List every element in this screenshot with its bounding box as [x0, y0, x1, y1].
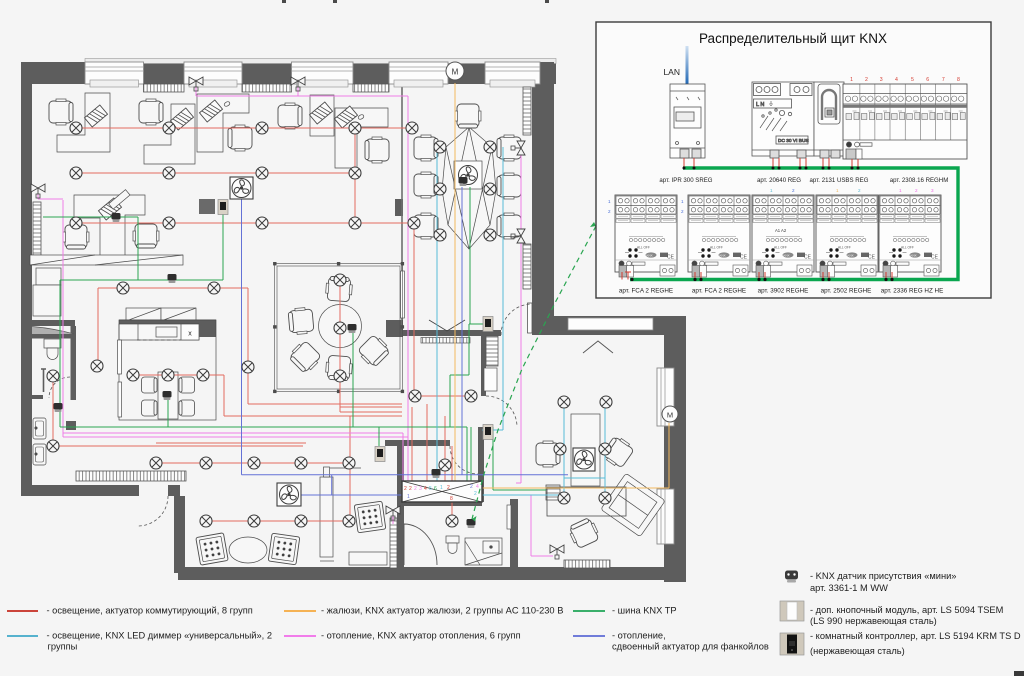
svg-text:2: 2	[409, 486, 412, 492]
svg-text:4: 4	[895, 77, 898, 83]
svg-text:8: 8	[957, 77, 960, 83]
svg-text:1: 1	[899, 188, 902, 193]
svg-text:2: 2	[474, 491, 477, 497]
svg-text:M: M	[452, 68, 459, 77]
svg-text:- комнатный контроллер, арт. L: - комнатный контроллер, арт. LS 5194 KRM…	[810, 631, 1021, 641]
svg-text:2: 2	[414, 486, 417, 492]
svg-text:арт. 3361-1 М WW: арт. 3361-1 М WW	[810, 583, 888, 593]
svg-text:4: 4	[476, 484, 479, 490]
svg-text:1: 1	[850, 77, 853, 83]
svg-text:группы: группы	[48, 642, 78, 652]
svg-text:- доп. кнопочный модуль, арт.: - доп. кнопочный модуль, арт. LS 5094 TS…	[810, 605, 1003, 615]
svg-text:арт. 3902 REGHE: арт. 3902 REGHE	[758, 288, 809, 295]
svg-text:2: 2	[865, 77, 868, 83]
svg-text:M: M	[667, 411, 673, 420]
svg-text:арт. 2131 USBS REG: арт. 2131 USBS REG	[810, 177, 869, 184]
svg-text:- освещение, актуатор коммутир: - освещение, актуатор коммутирующий, 8 г…	[47, 606, 253, 616]
svg-text:(нержавеющая сталь): (нержавеющая сталь)	[810, 646, 905, 656]
svg-text:арт. 2308.16 REGHM: арт. 2308.16 REGHM	[890, 177, 949, 184]
svg-text:DC 30 V! BUS: DC 30 V! BUS	[778, 138, 809, 144]
svg-text:2: 2	[404, 486, 407, 492]
svg-text:арт. 2336 REG HZ HE: арт. 2336 REG HZ HE	[881, 288, 944, 295]
svg-text:Распределительный щит KNX: Распределительный щит KNX	[699, 31, 887, 46]
svg-text:сдвоенный актуатор для фанкойл: сдвоенный актуатор для фанкойлов	[612, 642, 769, 652]
svg-text:L N: L N	[756, 102, 764, 108]
svg-text:LAN: LAN	[663, 67, 680, 77]
svg-text:1: 1	[836, 188, 839, 193]
svg-text:3: 3	[880, 77, 883, 83]
svg-text:A1 A2: A1 A2	[775, 228, 787, 233]
svg-text:2: 2	[858, 188, 861, 193]
svg-text:(LS 990 нержавеющая сталь): (LS 990 нержавеющая сталь)	[810, 616, 937, 626]
svg-text:2: 2	[915, 188, 918, 193]
svg-text:арт. IPR 300 SREG: арт. IPR 300 SREG	[659, 177, 712, 184]
svg-text:- освещение, KNX LED диммер «у: - освещение, KNX LED диммер «универсальн…	[47, 631, 273, 641]
svg-text:2: 2	[447, 485, 450, 491]
svg-text:- отопление,: - отопление,	[612, 631, 666, 641]
svg-text:1: 1	[770, 188, 773, 193]
svg-text:8: 8	[450, 496, 453, 502]
svg-text:5: 5	[429, 486, 432, 492]
svg-text:6: 6	[926, 77, 929, 83]
svg-text:3: 3	[931, 188, 934, 193]
svg-text:2: 2	[608, 209, 611, 214]
svg-text:2: 2	[681, 209, 684, 214]
svg-text:4: 4	[424, 486, 427, 492]
svg-text:7: 7	[942, 77, 945, 83]
svg-text:1: 1	[608, 199, 611, 204]
svg-text:6: 6	[434, 486, 437, 492]
svg-text:5: 5	[911, 77, 914, 83]
svg-text:3: 3	[419, 486, 422, 492]
svg-text:- шина KNX TP: - шина KNX TP	[612, 606, 677, 616]
svg-text:- отопление, KNX актуатор отоп: - отопление, KNX актуатор отопления, 6 г…	[321, 631, 521, 641]
svg-text:- KNX датчик присутствия «мини: - KNX датчик присутствия «мини»	[810, 571, 956, 581]
svg-text:арт. FCA 2 REGHE: арт. FCA 2 REGHE	[692, 288, 746, 295]
svg-text:арт. 20640 REG: арт. 20640 REG	[757, 177, 801, 184]
svg-text:2: 2	[470, 484, 473, 490]
svg-text:1: 1	[407, 494, 410, 500]
svg-text:арт. FCA 2 REGHE: арт. FCA 2 REGHE	[619, 288, 673, 295]
svg-text:- жалюзи, KNX актуатор жалюзи,: - жалюзи, KNX актуатор жалюзи, 2 группы …	[321, 606, 563, 616]
svg-text:x: x	[188, 331, 192, 338]
svg-text:арт. 2502 REGHE: арт. 2502 REGHE	[821, 288, 872, 295]
svg-text:2: 2	[792, 188, 795, 193]
svg-text:1: 1	[681, 199, 684, 204]
svg-text:1: 1	[440, 485, 443, 491]
